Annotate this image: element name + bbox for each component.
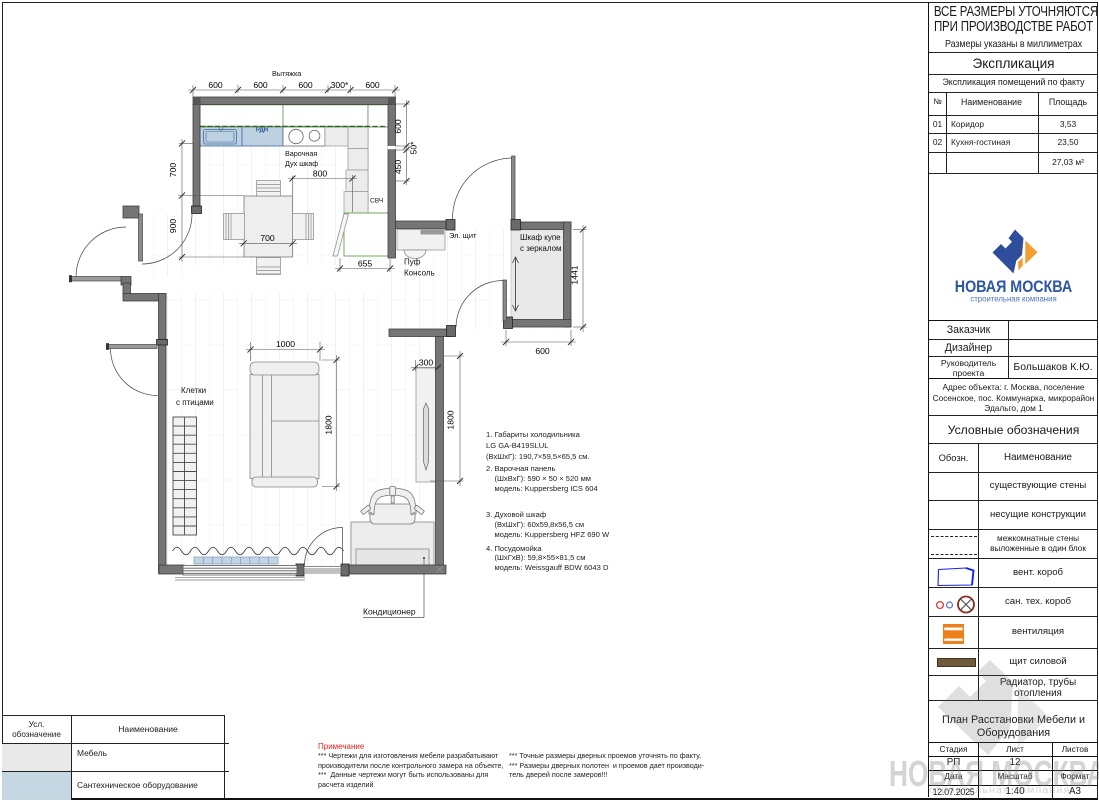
svg-text:1441: 1441 (570, 265, 580, 284)
svg-text:655: 655 (358, 259, 373, 269)
svg-text:Кондиционер: Кондиционер (363, 607, 416, 617)
svg-text:1800: 1800 (324, 415, 334, 434)
svg-text:600: 600 (253, 80, 268, 90)
svg-text:Дух шкаф: Дух шкаф (285, 159, 318, 168)
svg-text:900: 900 (168, 219, 178, 234)
svg-text:Пуф: Пуф (404, 258, 421, 267)
svg-text:700: 700 (260, 233, 275, 243)
svg-text:600: 600 (298, 80, 313, 90)
svg-text:Клетки: Клетки (181, 386, 206, 395)
svg-text:строительная компания: строительная компания (970, 295, 1056, 304)
svg-text:300*: 300* (331, 80, 349, 90)
svg-text:1000: 1000 (276, 339, 295, 349)
svg-text:Консоль: Консоль (404, 269, 435, 278)
svg-text:1800: 1800 (446, 410, 456, 429)
svg-text:450: 450 (393, 160, 403, 175)
svg-text:Шкаф купе: Шкаф купе (520, 233, 561, 242)
svg-text:600: 600 (365, 80, 380, 90)
svg-text:600: 600 (208, 80, 223, 90)
svg-text:РДН: РДН (256, 128, 268, 134)
svg-text:700: 700 (168, 163, 178, 178)
svg-text:СВЧ: СВЧ (370, 198, 383, 205)
svg-text:Эл. щит: Эл. щит (449, 231, 477, 240)
svg-text:Вытяжка: Вытяжка (272, 69, 301, 78)
svg-text:с птицами: с птицами (176, 398, 214, 407)
svg-text:800: 800 (313, 169, 328, 179)
svg-text:50*: 50* (409, 141, 419, 155)
svg-text:600: 600 (393, 119, 403, 134)
svg-text:с зеркалом: с зеркалом (520, 244, 562, 253)
svg-text:300: 300 (419, 357, 434, 367)
svg-text:600: 600 (535, 346, 550, 356)
svg-text:Варочная: Варочная (285, 149, 317, 158)
